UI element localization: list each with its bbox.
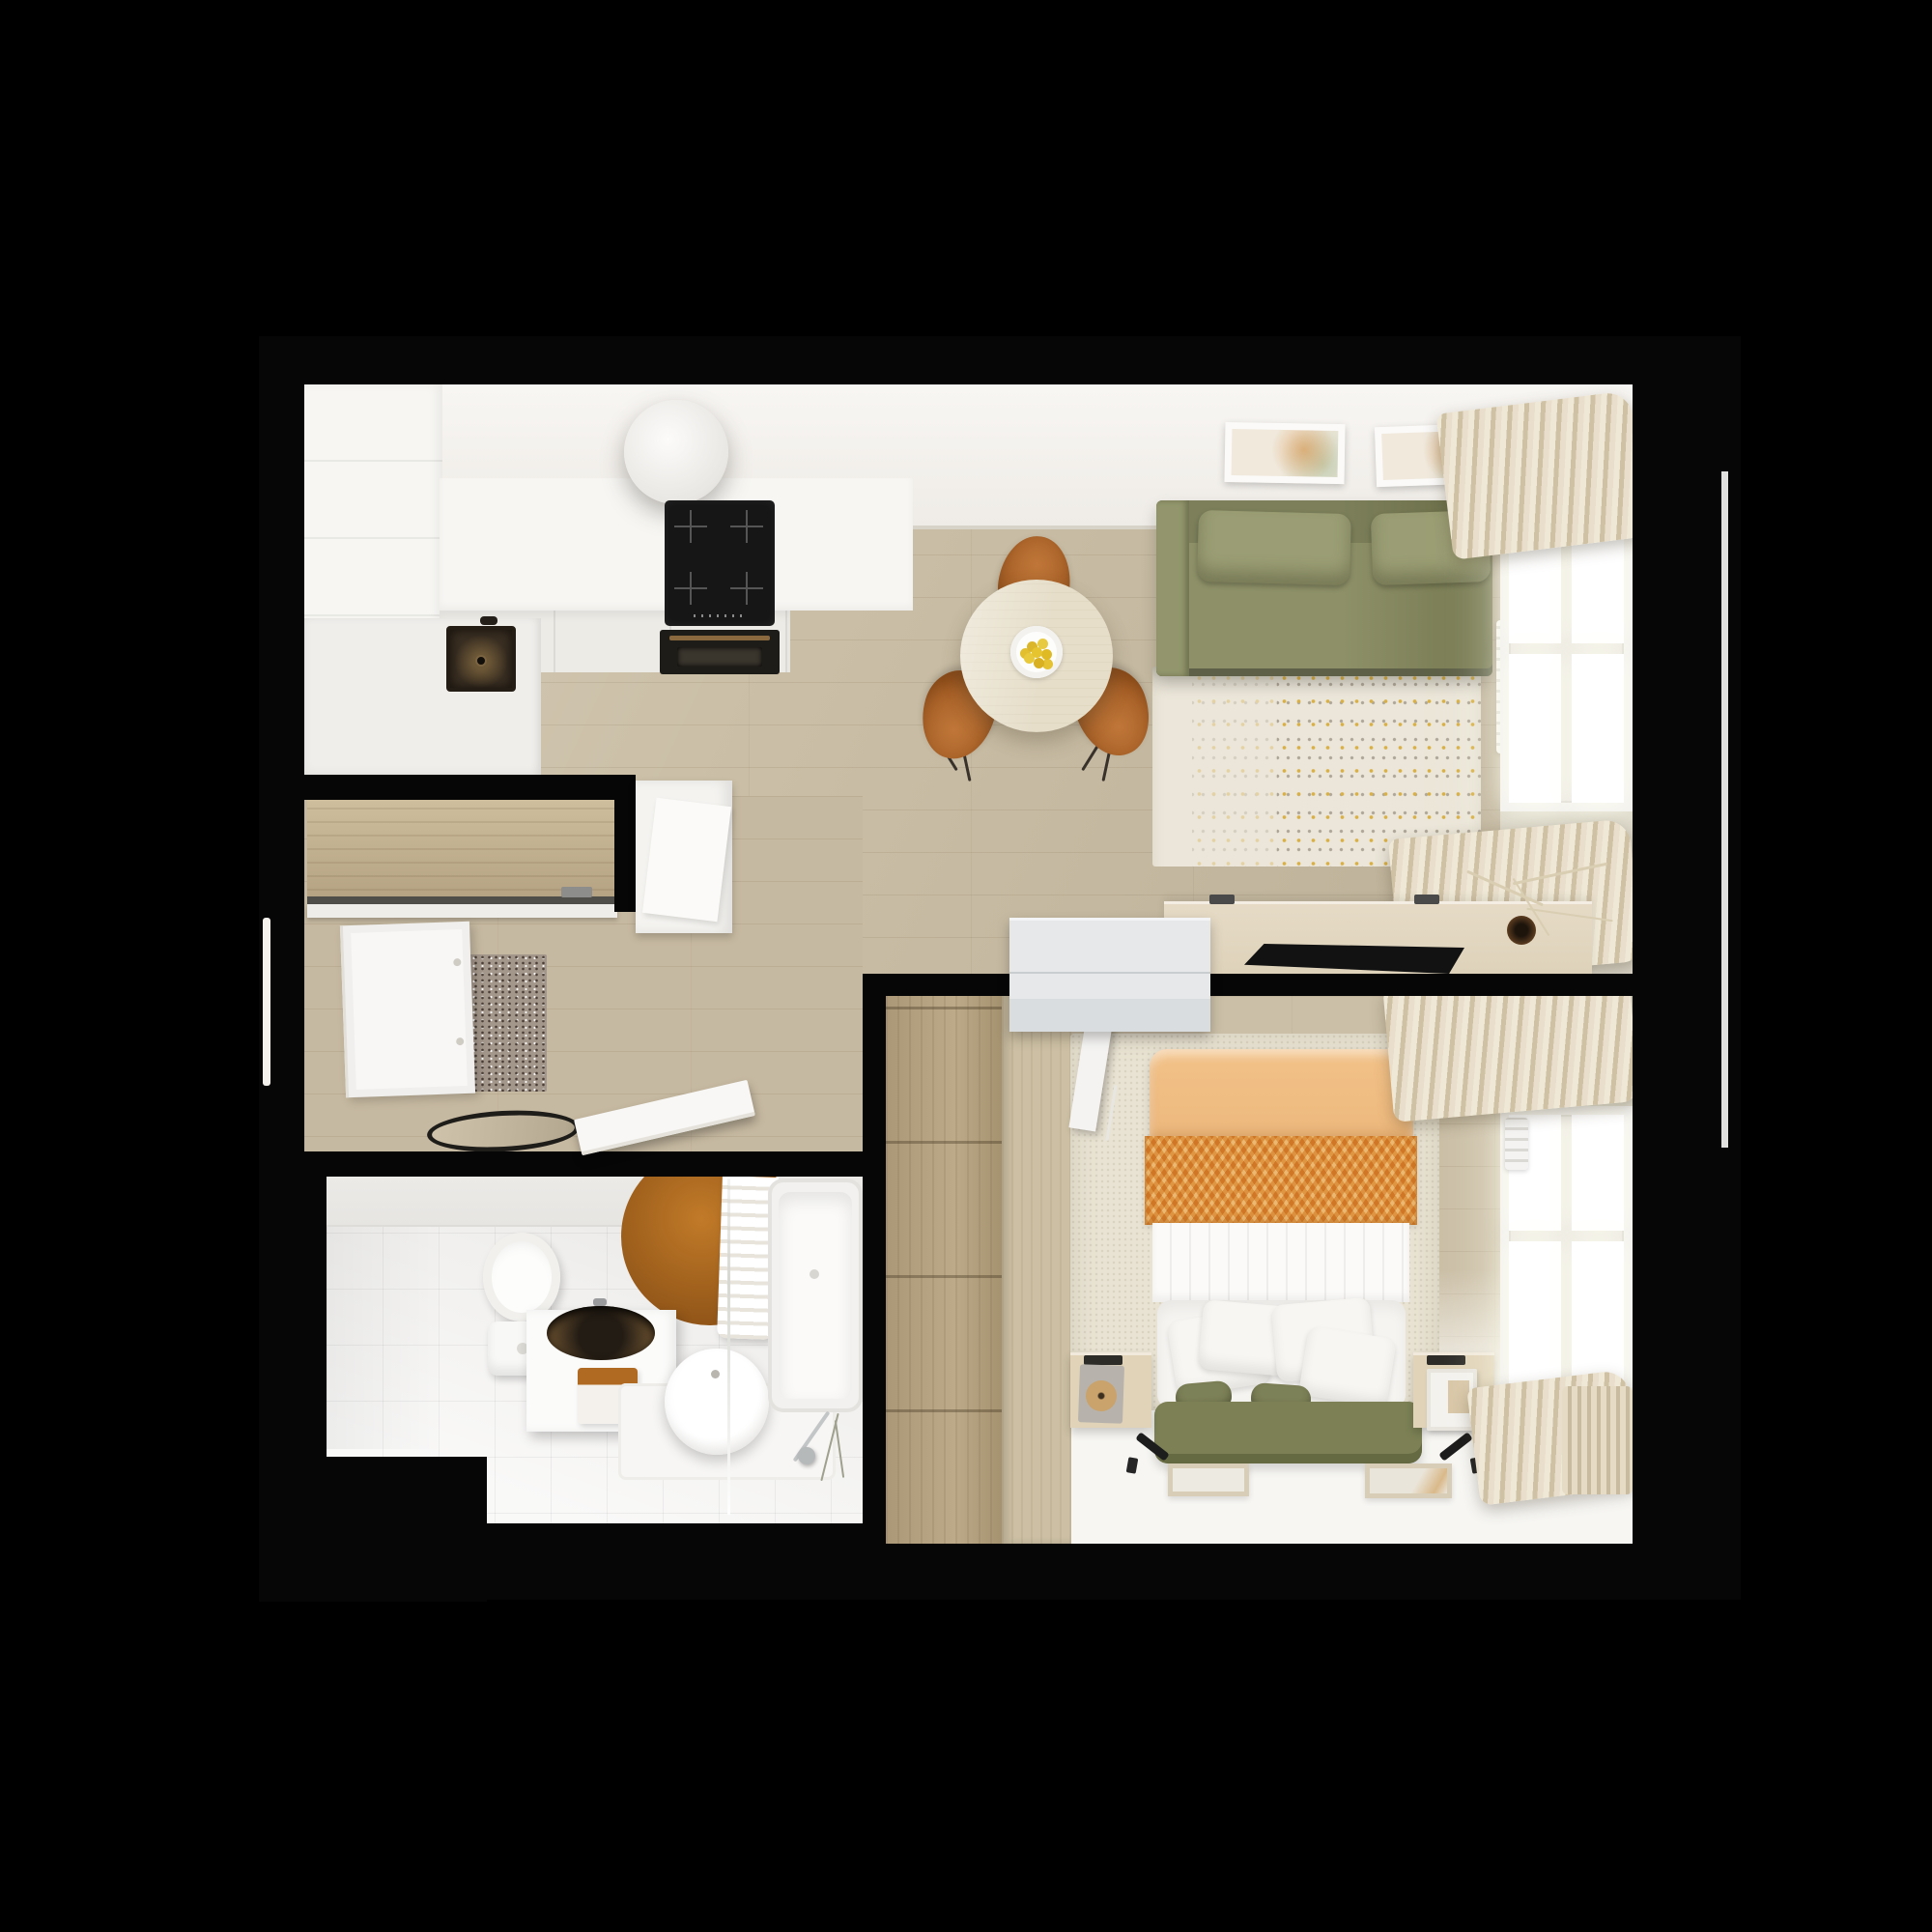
- built-in-oven: [660, 630, 780, 674]
- window-pane: [1509, 1241, 1561, 1387]
- wardrobe-shelf: [307, 904, 617, 918]
- room-bedroom: [886, 996, 1633, 1544]
- window-pane: [1572, 1241, 1624, 1387]
- exterior-notch: [259, 1457, 487, 1602]
- white-dresser: [1009, 918, 1210, 1032]
- curtain: [1435, 390, 1633, 559]
- sofa-armrest: [1156, 500, 1189, 676]
- sofa-cushion: [1197, 510, 1351, 585]
- round-washbasin: [665, 1349, 769, 1455]
- bathtub-interior: [779, 1192, 852, 1399]
- wardrobe-handle: [561, 887, 592, 897]
- leaning-frame: [1168, 1463, 1249, 1496]
- lemons: [1032, 647, 1042, 658]
- dresser-seam: [1009, 972, 1210, 974]
- curtain: [1382, 996, 1633, 1122]
- bed-orange-duvet: [1150, 1049, 1413, 1138]
- closet-door: [642, 798, 731, 923]
- magazine-picture: [1448, 1380, 1469, 1413]
- white-duvet: [1152, 1223, 1409, 1302]
- oven-window: [677, 647, 762, 667]
- cooktop-controls: [694, 614, 748, 617]
- door-handle: [456, 1037, 464, 1045]
- pillow: [1298, 1325, 1397, 1408]
- induction-cooktop: [665, 500, 775, 626]
- room-entry-hall: [304, 796, 863, 1151]
- bedroom-wardrobe: [886, 996, 1002, 1544]
- curtain-slats: [1562, 1386, 1633, 1494]
- shower-glass: [727, 1179, 730, 1515]
- burner-icon: [674, 510, 707, 543]
- toilet: [483, 1233, 560, 1321]
- wall-bracket: [1414, 895, 1439, 904]
- burner-icon: [674, 572, 707, 605]
- rug-pattern: [1192, 667, 1284, 867]
- window-pane: [1572, 654, 1624, 803]
- living-window: [1500, 514, 1633, 811]
- basin-drain: [711, 1370, 720, 1378]
- nightstand-handle: [1084, 1355, 1122, 1365]
- wall-art-frame: [1224, 422, 1345, 484]
- door-hinge: [453, 958, 461, 966]
- nightstand-handle: [1427, 1355, 1465, 1365]
- oval-mirror: [426, 1107, 581, 1151]
- sink-faucet: [480, 616, 497, 625]
- tub-drain: [810, 1269, 819, 1279]
- herringbone-throw: [1145, 1136, 1417, 1225]
- bathroom-wall-shade: [327, 1227, 471, 1449]
- kitchen-tall-cabinets: [304, 384, 442, 623]
- exterior-wall-edge: [1721, 471, 1728, 1148]
- entry-threshold: [263, 918, 270, 1086]
- wood-disc-decor: [1086, 1380, 1117, 1411]
- shower-head: [798, 1447, 815, 1464]
- burner-icon: [730, 510, 763, 543]
- entry-door: [340, 922, 475, 1098]
- burner-icon: [730, 572, 763, 605]
- radiator: [1505, 1118, 1528, 1170]
- vanity-basin: [547, 1306, 655, 1360]
- sink-drain: [475, 655, 487, 667]
- vase: [1507, 916, 1536, 945]
- bedroom-wardrobe-side: [1002, 996, 1071, 1544]
- kitchen-hall-wall: [304, 775, 636, 800]
- headboard-bench: [1154, 1402, 1422, 1463]
- floor-plan-render: Top-down 3D render of a one-bedroom apar…: [0, 0, 1932, 1932]
- oven-handle: [669, 636, 770, 640]
- wall-bracket: [1209, 895, 1235, 904]
- extractor-hood: [624, 400, 728, 504]
- leaning-frame: [1365, 1463, 1452, 1498]
- flower-sprig: [835, 1420, 844, 1478]
- vanity-tap: [593, 1298, 607, 1306]
- window-pane: [1509, 654, 1561, 803]
- window-pane: [1572, 1115, 1624, 1231]
- wall-stub: [614, 796, 636, 912]
- wardrobe-rail: [307, 896, 617, 904]
